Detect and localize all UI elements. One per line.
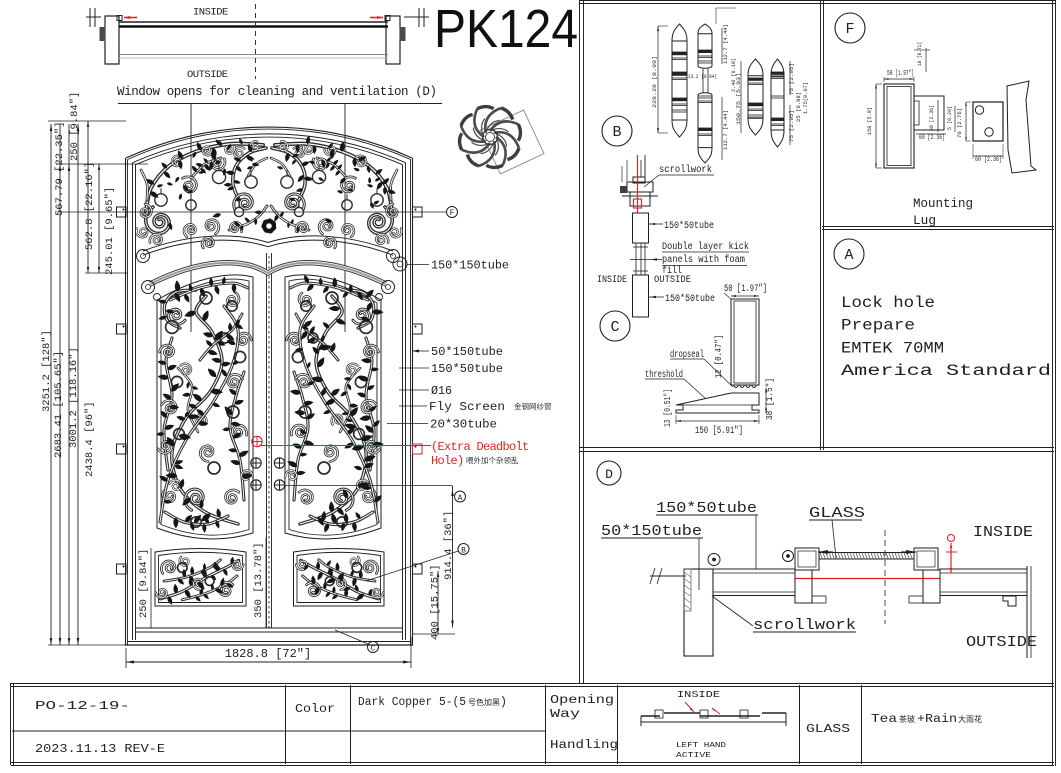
- svg-text:ACTIVE: ACTIVE: [676, 752, 712, 760]
- svg-text:Double layer kick: Double layer kick: [662, 241, 749, 253]
- svg-text:INSIDE: INSIDE: [597, 274, 627, 286]
- svg-text:12 [0.47"]: 12 [0.47"]: [713, 335, 724, 378]
- svg-text:Ø16: Ø16: [431, 384, 452, 398]
- svg-text:150 [5.91"]: 150 [5.91"]: [695, 425, 743, 437]
- svg-text:50 [1.97"]: 50 [1.97"]: [887, 70, 914, 78]
- svg-text:150*50tube: 150*50tube: [665, 293, 715, 305]
- svg-text:Lock hole: Lock hole: [841, 294, 935, 312]
- svg-text:60 [2.36]: 60 [2.36]: [919, 134, 945, 141]
- svg-text:INSIDE: INSIDE: [193, 7, 228, 19]
- svg-text:2683.41 [105.65"]: 2683.41 [105.65"]: [53, 351, 65, 458]
- svg-text:3001.2 [118.16"]: 3001.2 [118.16"]: [68, 347, 80, 448]
- svg-text:50 [1.97"]: 50 [1.97"]: [724, 283, 767, 295]
- svg-text:400 [15.75"]: 400 [15.75"]: [430, 564, 442, 640]
- svg-text:Tea: Tea: [871, 713, 897, 726]
- svg-text:F: F: [450, 209, 455, 218]
- svg-text:): ): [500, 696, 507, 709]
- svg-text:Opening: Opening: [550, 694, 614, 707]
- svg-text:C: C: [371, 644, 376, 653]
- svg-text:America Standard: America Standard: [841, 362, 1051, 380]
- svg-text:562.8 [22.16"]: 562.8 [22.16"]: [84, 162, 96, 250]
- svg-text:PO-12-19-: PO-12-19-: [35, 700, 130, 713]
- svg-text:3251.2 [128"]: 3251.2 [128"]: [41, 330, 53, 412]
- svg-text:70 [2.76]: 70 [2.76]: [956, 108, 963, 138]
- svg-text:914.4 [36"]: 914.4 [36"]: [443, 511, 455, 580]
- svg-text:150.75 [5.93]: 150.75 [5.93]: [735, 73, 742, 125]
- svg-text:OUTSIDE: OUTSIDE: [654, 274, 691, 286]
- svg-text:1.75[0.07]: 1.75[0.07]: [803, 82, 809, 114]
- svg-text:OUTSIDE: OUTSIDE: [966, 635, 1037, 651]
- svg-text:B: B: [612, 124, 621, 141]
- svg-text:Prepare: Prepare: [841, 317, 915, 335]
- svg-text:B: B: [461, 546, 466, 555]
- svg-text:150*150tube: 150*150tube: [431, 259, 509, 273]
- svg-text:20*30tube: 20*30tube: [430, 418, 497, 432]
- svg-text:13 [0.51"]: 13 [0.51"]: [662, 389, 673, 427]
- svg-text:A: A: [844, 247, 853, 264]
- svg-text:112.7 [4.44]: 112.7 [4.44]: [722, 110, 729, 150]
- svg-text:PK124: PK124: [434, 0, 578, 59]
- svg-text:350 [13.78"]: 350 [13.78"]: [253, 542, 265, 618]
- svg-text:(Extra Deadbolt: (Extra Deadbolt: [431, 440, 529, 454]
- svg-text:金钢网纱窗: 金钢网纱窗: [514, 401, 552, 411]
- svg-text:Hole): Hole): [431, 454, 464, 468]
- svg-text:INSIDE: INSIDE: [677, 690, 720, 700]
- svg-text:567.79 [22.35"]: 567.79 [22.35"]: [54, 121, 66, 216]
- svg-text:scrollwork: scrollwork: [659, 164, 712, 176]
- svg-text:158 [5.9]: 158 [5.9]: [867, 107, 873, 135]
- svg-text:F: F: [845, 21, 854, 38]
- svg-text:LEFT HAND: LEFT HAND: [676, 742, 727, 750]
- svg-text:Color: Color: [295, 703, 335, 716]
- svg-text:+Rain: +Rain: [917, 713, 957, 726]
- svg-text:号色加黑: 号色加黑: [468, 697, 500, 707]
- svg-text:茶玻: 茶玻: [899, 714, 915, 724]
- svg-text:D: D: [605, 467, 613, 482]
- svg-text:1828.8 [72"]: 1828.8 [72"]: [225, 647, 311, 661]
- svg-text:INSIDE: INSIDE: [973, 525, 1033, 541]
- svg-text:Way: Way: [550, 708, 580, 721]
- svg-text:75 [2.95]: 75 [2.95]: [788, 110, 795, 142]
- svg-text:5 [0.20]: 5 [0.20]: [947, 106, 953, 130]
- svg-text:Dark Copper 5-(5: Dark Copper 5-(5: [358, 696, 466, 709]
- svg-text:250 [9.84"]: 250 [9.84"]: [69, 92, 81, 161]
- svg-text:150*50tube: 150*50tube: [664, 220, 714, 232]
- svg-text:Mounting: Mounting: [913, 196, 973, 211]
- svg-text:Fly Screen: Fly Screen: [429, 400, 505, 414]
- svg-text:OUTSIDE: OUTSIDE: [187, 69, 228, 81]
- svg-text:Window opens for cleaning and: Window opens for cleaning and ventilatio…: [117, 85, 437, 99]
- svg-text:大雨花: 大雨花: [958, 714, 982, 724]
- svg-text:GLASS: GLASS: [806, 723, 850, 736]
- svg-text:75 [2.95]: 75 [2.95]: [788, 63, 795, 95]
- svg-text:23.2 [0.94]: 23.2 [0.94]: [688, 73, 717, 80]
- svg-text:Handling: Handling: [550, 739, 618, 752]
- svg-text:245.01 [9.65"]: 245.01 [9.65"]: [104, 187, 116, 275]
- svg-text:150*50tube: 150*50tube: [431, 362, 503, 376]
- svg-text:喂外加个杂领乱: 喂外加个杂领乱: [466, 455, 519, 465]
- svg-text:A: A: [458, 494, 463, 503]
- svg-text:C: C: [610, 319, 619, 336]
- svg-text:18 [0.71]: 18 [0.71]: [917, 42, 923, 66]
- svg-text:60 [2.36]: 60 [2.36]: [975, 156, 1002, 163]
- svg-text:250 [9.84"]: 250 [9.84"]: [138, 549, 150, 618]
- svg-text:2438.4 [96"]: 2438.4 [96"]: [84, 401, 96, 477]
- svg-text:112.7 [4.44]: 112.7 [4.44]: [722, 24, 729, 64]
- svg-text:2023.11.13 REV-E: 2023.11.13 REV-E: [35, 743, 165, 756]
- svg-text:228.28 [8.99]: 228.28 [8.99]: [651, 56, 658, 108]
- svg-text:60 [2.36]: 60 [2.36]: [929, 105, 935, 131]
- svg-text:EMTEK 70MM: EMTEK 70MM: [841, 339, 944, 357]
- svg-text:Lug: Lug: [913, 213, 936, 228]
- svg-text:50*150tube: 50*150tube: [431, 345, 503, 359]
- svg-text:25 [0.98]: 25 [0.98]: [796, 92, 802, 122]
